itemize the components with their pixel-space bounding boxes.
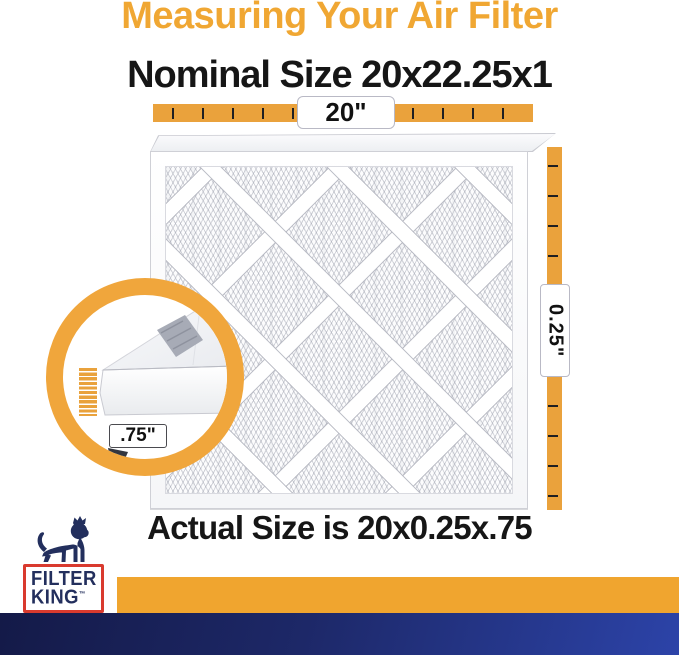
magnifier-view: .75" [63,295,227,459]
logo-line-2: KING™ [31,587,95,606]
filter-king-logo: FILTER KING™ [23,564,104,613]
height-mini-ruler [79,368,97,416]
actual-size-heading: Actual Size is 20x0.25x.75 [0,510,679,546]
air-filter-measuring-infographic: Measuring Your Air Filter Nominal Size 2… [0,0,679,655]
depth-measurement-label: 0.25" [540,284,570,377]
magnifier-circle: .75" [46,278,244,476]
footer-navy-bar [0,613,679,655]
filter-top-face [150,133,556,152]
nominal-size-heading: Nominal Size 20x22.25x1 [0,55,679,95]
height-measurement-label: .75" [109,424,167,448]
logo-line-1: FILTER [31,571,95,588]
page-title: Measuring Your Air Filter [0,0,679,36]
trademark-symbol: ™ [79,591,85,598]
lion-crown-icon [36,516,100,566]
width-measurement-label: 20" [297,96,395,129]
footer-orange-bar [117,577,679,613]
